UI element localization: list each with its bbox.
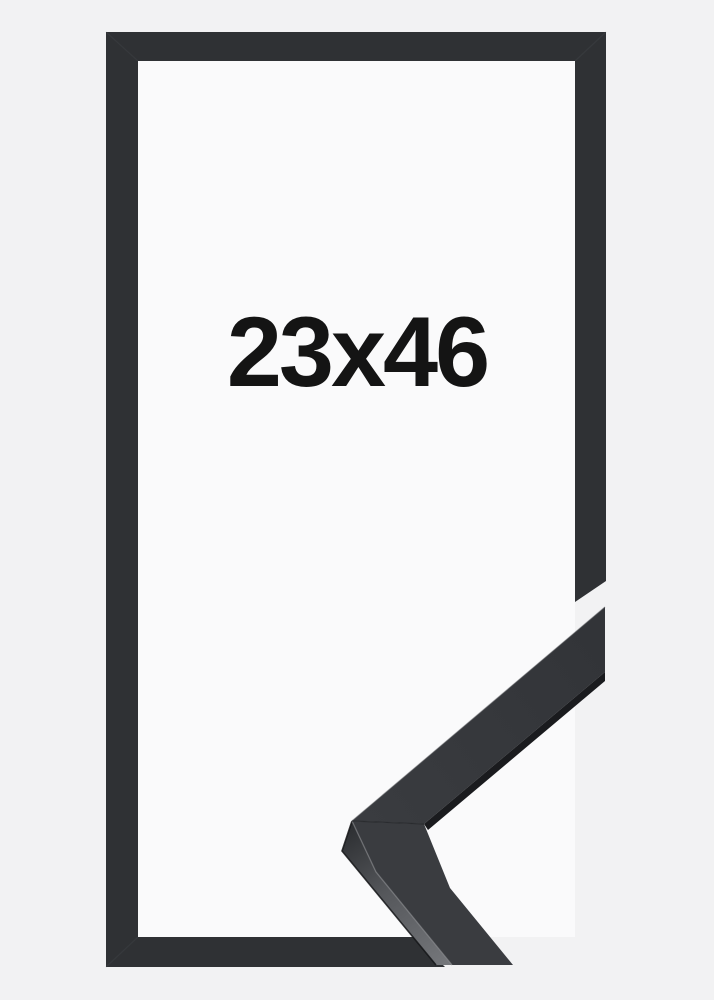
frame-interior bbox=[138, 61, 575, 937]
product-image: 23x46 bbox=[0, 0, 714, 1000]
size-label: 23x46 bbox=[0, 294, 714, 409]
frame-graphic bbox=[0, 0, 714, 1000]
